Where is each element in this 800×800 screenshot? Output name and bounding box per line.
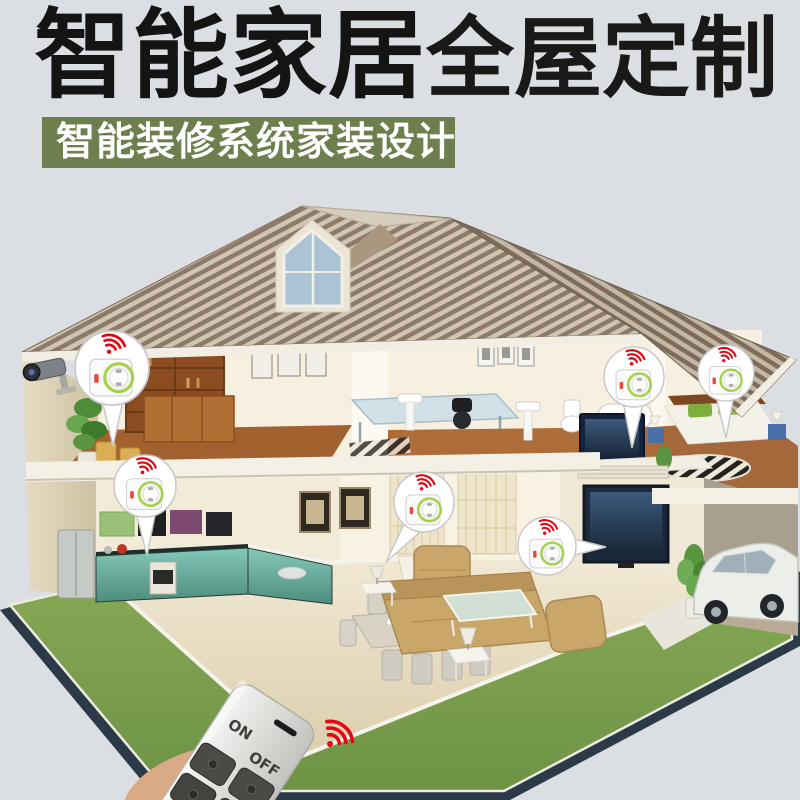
- slab-right: [652, 488, 798, 504]
- subtitle-banner: 智能装修系统家装设计: [42, 117, 455, 168]
- sink: [278, 567, 306, 579]
- title-main: 智能家居: [34, 0, 426, 112]
- poster: 智能家居全屋定制 智能装修系统家装设计: [0, 0, 800, 800]
- toilet: [564, 400, 580, 418]
- armchair: [545, 594, 608, 653]
- office-chair: [452, 398, 472, 412]
- nightstand: [648, 428, 664, 443]
- glass-desk: [352, 394, 518, 424]
- title-sub: 全屋定制: [426, 6, 778, 110]
